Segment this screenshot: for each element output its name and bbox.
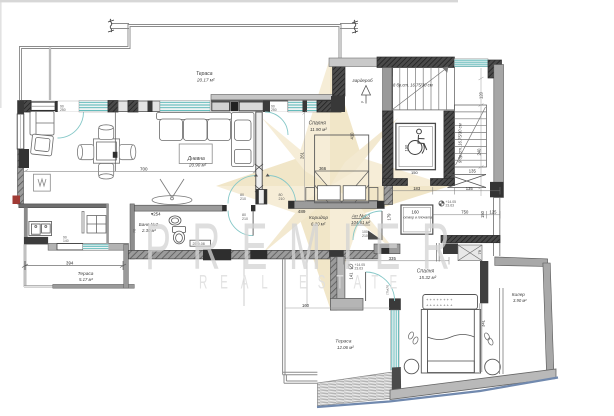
- svg-text:700: 700: [140, 166, 148, 171]
- svg-text:250: 250: [271, 108, 277, 112]
- svg-text:20.90 м²: 20.90 м²: [188, 162, 207, 167]
- svg-text:135: 135: [466, 186, 474, 191]
- svg-text:8 бр.ст. 16.75/30 см: 8 бр.ст. 16.75/30 см: [393, 83, 433, 88]
- svg-text:190: 190: [404, 144, 409, 151]
- svg-text:183: 183: [413, 186, 421, 191]
- svg-text:210: 210: [240, 197, 246, 201]
- svg-text:+ + + + + + + +: + + + + + + + +: [426, 303, 453, 308]
- svg-text:79: 79: [477, 249, 482, 254]
- svg-text:ESTATE: ESTATE: [299, 273, 408, 294]
- svg-text:410: 410: [350, 132, 355, 140]
- svg-text:REAL: REAL: [199, 273, 280, 294]
- svg-text:394: 394: [66, 261, 74, 266]
- svg-text:160: 160: [302, 303, 310, 308]
- svg-text:Дневна: Дневна: [187, 156, 205, 162]
- svg-text:9 бр.ст. 16.75/30 см: 9 бр.ст. 16.75/30 см: [458, 123, 463, 163]
- svg-text:гардероб: гардероб: [353, 78, 374, 83]
- svg-text:150: 150: [411, 170, 418, 175]
- svg-text:12.06 м²: 12.06 м²: [337, 345, 354, 350]
- svg-text:Спалня: Спалня: [309, 121, 327, 127]
- svg-text:125: 125: [490, 209, 498, 214]
- svg-text:140: 140: [63, 239, 69, 243]
- svg-text:5.17 м²: 5.17 м²: [79, 277, 94, 282]
- svg-text:78: 78: [133, 229, 137, 233]
- svg-text:261: 261: [300, 151, 305, 159]
- svg-text:341: 341: [481, 319, 486, 327]
- svg-text:366: 366: [319, 166, 327, 171]
- svg-text:+ + + + + + + +: + + + + + + + +: [426, 297, 453, 302]
- svg-text:Тераса: Тераса: [335, 339, 351, 345]
- svg-text:210: 210: [279, 197, 285, 201]
- svg-text:11.90 м²: 11.90 м²: [310, 127, 327, 132]
- svg-text:250: 250: [60, 108, 66, 112]
- svg-text:3.90 м²: 3.90 м²: [513, 298, 527, 303]
- svg-text:135: 135: [469, 168, 477, 173]
- svg-text:150: 150: [480, 210, 485, 218]
- svg-text:23.63: 23.63: [446, 204, 455, 208]
- svg-text:Килер: Килер: [512, 292, 526, 297]
- svg-text:у.: у.: [360, 101, 364, 103]
- svg-text:20.17 м²: 20.17 м²: [196, 78, 215, 83]
- svg-text:Тераса: Тераса: [196, 71, 213, 77]
